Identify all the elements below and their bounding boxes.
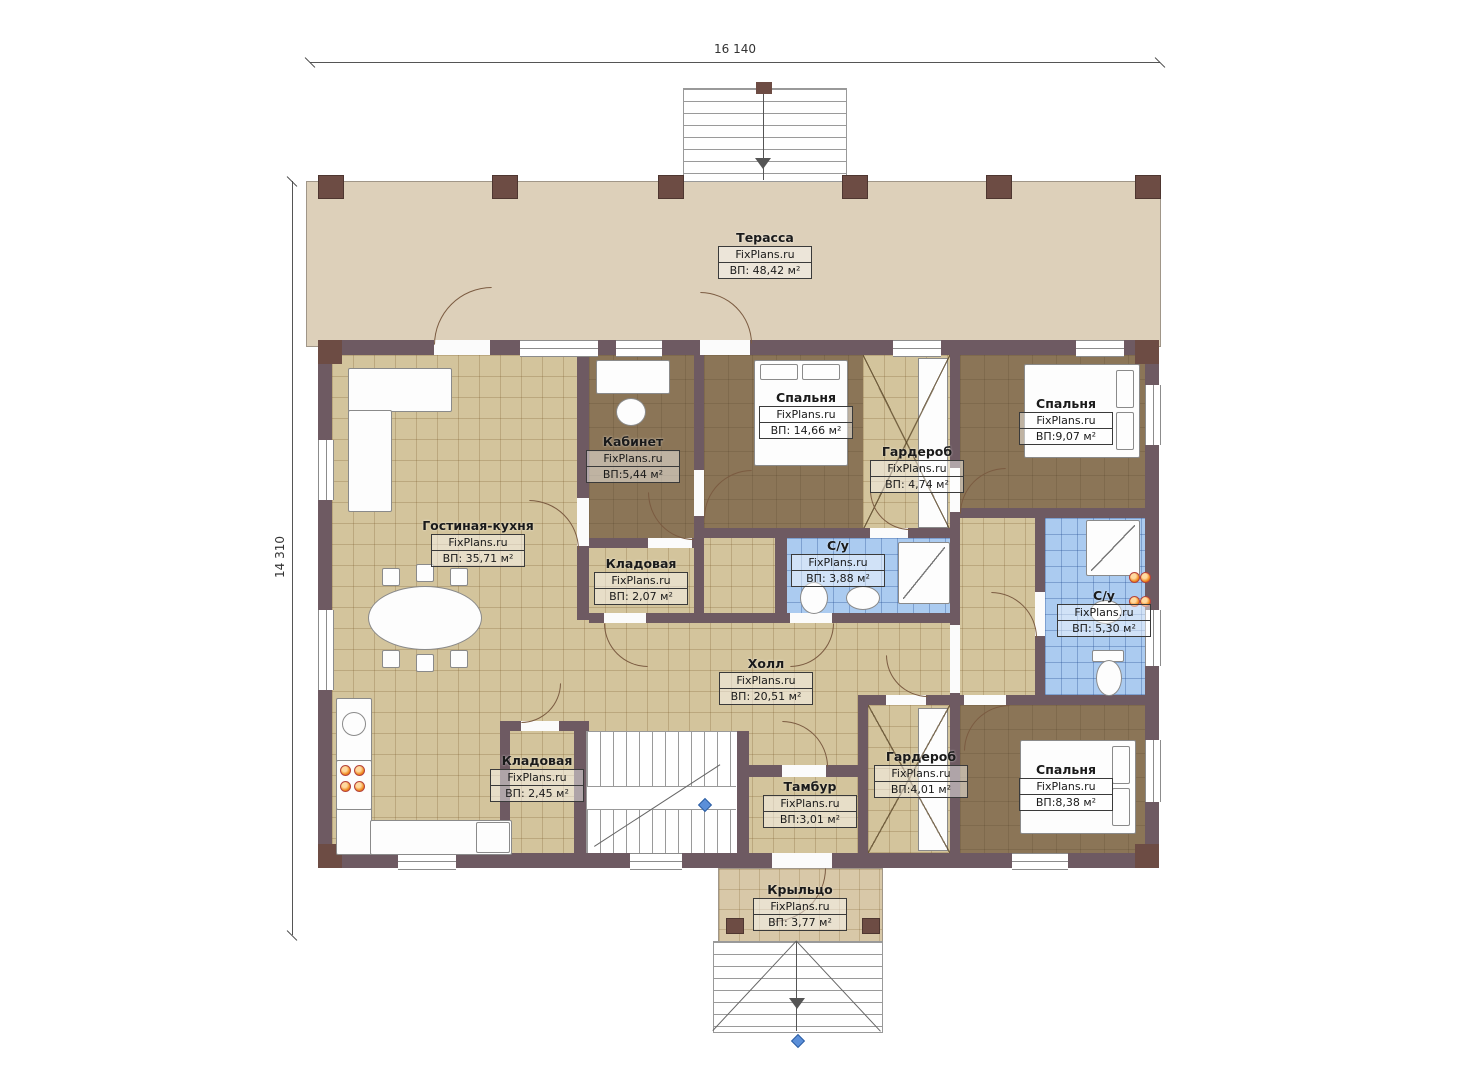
window [1145, 385, 1161, 445]
room-label-bedroom1: Спальня FixPlans.ru ВП: 14,66 м² [740, 390, 872, 439]
window [1076, 340, 1124, 357]
room-name: Крыльцо [767, 882, 832, 897]
terrace-post [842, 175, 868, 199]
terrace-post [1135, 175, 1161, 199]
steps-post [756, 82, 772, 94]
room-area: ВП: 2,07 м² [594, 588, 688, 605]
room-area: ВП:9,07 м² [1019, 428, 1113, 445]
room-area: ВП:8,38 м² [1019, 794, 1113, 811]
room-label-storage1: Кладовая FixPlans.ru ВП: 2,07 м² [575, 556, 707, 605]
stove-burner [340, 765, 351, 776]
sofa [348, 368, 452, 412]
window [630, 853, 682, 870]
door-opening [577, 498, 589, 546]
room-area: ВП:5,44 м² [586, 466, 680, 483]
room-area: ВП:3,01 м² [763, 811, 857, 828]
steps-center-line [796, 941, 797, 1031]
shower [1086, 520, 1140, 576]
brand-watermark: FixPlans.ru [719, 672, 813, 689]
room-label-bedroom3: Спальня FixPlans.ru ВП:8,38 м² [1000, 762, 1132, 811]
room-area: ВП:4,01 м² [874, 781, 968, 798]
floor-plan: 16 140 14 310 [0, 0, 1474, 1080]
room-name: С/у [1093, 588, 1115, 603]
sofa [348, 410, 392, 512]
shower [898, 542, 950, 604]
room-label-wardrobe2: Гардероб FixPlans.ru ВП:4,01 м² [855, 749, 987, 798]
window [318, 440, 334, 500]
window [616, 340, 662, 357]
room-name: Спальня [1036, 762, 1096, 777]
room-label-bathroom1: С/у FixPlans.ru ВП: 3,88 м² [772, 538, 904, 587]
room-area: ВП: 3,88 м² [791, 570, 885, 587]
brand-watermark: FixPlans.ru [870, 460, 964, 477]
dimension-line-top [310, 62, 1160, 63]
chair [450, 568, 468, 586]
room-name: Спальня [776, 390, 836, 405]
wall-outer-left [318, 340, 332, 868]
corner-pier [318, 340, 342, 364]
door-opening [964, 695, 1006, 705]
brand-watermark: FixPlans.ru [594, 572, 688, 589]
stairs-landing [587, 786, 736, 810]
room-label-terrace: Терасса FixPlans.ru ВП: 48,42 м² [699, 230, 831, 279]
room-name: Терасса [736, 230, 794, 245]
room-area: ВП: 2,45 м² [490, 785, 584, 802]
dining-table [368, 586, 482, 650]
brand-watermark: FixPlans.ru [1019, 412, 1113, 429]
window [1012, 853, 1068, 870]
entry-marker [791, 1034, 805, 1048]
brand-watermark: FixPlans.ru [586, 450, 680, 467]
pillow [802, 364, 840, 380]
room-label-porch: Крыльцо FixPlans.ru ВП: 3,77 м² [734, 882, 866, 931]
toilet [1096, 660, 1122, 696]
wall-bedroom1-south [704, 528, 960, 538]
dimension-height-label: 14 310 [273, 517, 287, 597]
door-opening [886, 695, 926, 705]
room-label-living-kitchen: Гостиная-кухня FixPlans.ru ВП: 35,71 м² [412, 518, 544, 567]
window [893, 340, 941, 357]
room-label-wardrobe1: Гардероб FixPlans.ru ВП: 4,74 м² [851, 444, 983, 493]
steps-arrow [789, 998, 805, 1009]
room-name: Гостиная-кухня [422, 518, 534, 533]
room-name: Спальня [1036, 396, 1096, 411]
brand-watermark: FixPlans.ru [1019, 778, 1113, 795]
steps-arrow [755, 158, 771, 169]
terrace-post [986, 175, 1012, 199]
brand-watermark: FixPlans.ru [763, 795, 857, 812]
room-area: ВП: 4,74 м² [870, 476, 964, 493]
room-label-bathroom2: С/у FixPlans.ru ВП: 5,30 м² [1038, 588, 1170, 637]
brand-watermark: FixPlans.ru [791, 554, 885, 571]
door-opening [772, 853, 832, 868]
room-area: ВП: 48,42 м² [718, 262, 812, 279]
room-name: Гардероб [886, 749, 956, 764]
door-opening [870, 528, 908, 538]
door-opening [950, 625, 960, 693]
chair [450, 650, 468, 668]
room-area: ВП: 14,66 м² [759, 422, 853, 439]
room-area: ВП: 3,77 м² [753, 914, 847, 931]
brand-watermark: FixPlans.ru [759, 406, 853, 423]
room-name: Холл [748, 656, 785, 671]
desk [596, 360, 670, 394]
window [398, 853, 456, 870]
chair [382, 568, 400, 586]
kitchen-sink [342, 712, 366, 736]
pillow [760, 364, 798, 380]
dimension-width-label: 16 140 [690, 42, 780, 56]
window [1145, 740, 1161, 802]
terrace-post [318, 175, 344, 199]
chair [416, 654, 434, 672]
dimension-line-left [292, 181, 293, 935]
heater-indicator [1140, 572, 1151, 583]
shower-drain-line [1091, 525, 1135, 571]
room-area: ВП: 20,51 м² [719, 688, 813, 705]
corner-pier [1135, 340, 1159, 364]
door-opening [648, 538, 692, 548]
window [520, 340, 598, 357]
room-label-storage2: Кладовая FixPlans.ru ВП: 2,45 м² [471, 753, 603, 802]
brand-watermark: FixPlans.ru [874, 765, 968, 782]
room-area: ВП: 5,30 м² [1057, 620, 1151, 637]
room-label-bedroom2: Спальня FixPlans.ru ВП:9,07 м² [1000, 396, 1132, 445]
terrace-post [492, 175, 518, 199]
room-name: Кладовая [502, 753, 573, 768]
brand-watermark: FixPlans.ru [753, 898, 847, 915]
chair [382, 650, 400, 668]
stove-burner [340, 781, 351, 792]
door-opening [790, 613, 832, 623]
stove-burner [354, 781, 365, 792]
heater-indicator [1129, 572, 1140, 583]
window [318, 610, 334, 690]
room-name: Кабинет [603, 434, 664, 449]
stove-burner [354, 765, 365, 776]
office-chair [616, 398, 646, 426]
brand-watermark: FixPlans.ru [431, 534, 525, 551]
brand-watermark: FixPlans.ru [1057, 604, 1151, 621]
shower-drain-line [903, 547, 945, 599]
room-name: С/у [827, 538, 849, 553]
brand-watermark: FixPlans.ru [718, 246, 812, 263]
fridge [476, 822, 510, 853]
porch-steps [713, 941, 883, 1033]
room-area: ВП: 35,71 м² [431, 550, 525, 567]
room-name: Тамбур [783, 779, 836, 794]
room-label-hall: Холл FixPlans.ru ВП: 20,51 м² [700, 656, 832, 705]
room-name: Гардероб [882, 444, 952, 459]
brand-watermark: FixPlans.ru [490, 769, 584, 786]
terrace-post [658, 175, 684, 199]
room-label-office: Кабинет FixPlans.ru ВП:5,44 м² [567, 434, 699, 483]
door-opening [604, 613, 646, 623]
room-name: Кладовая [606, 556, 677, 571]
corner-pier [1135, 844, 1159, 868]
bathroom-sink [846, 586, 880, 610]
